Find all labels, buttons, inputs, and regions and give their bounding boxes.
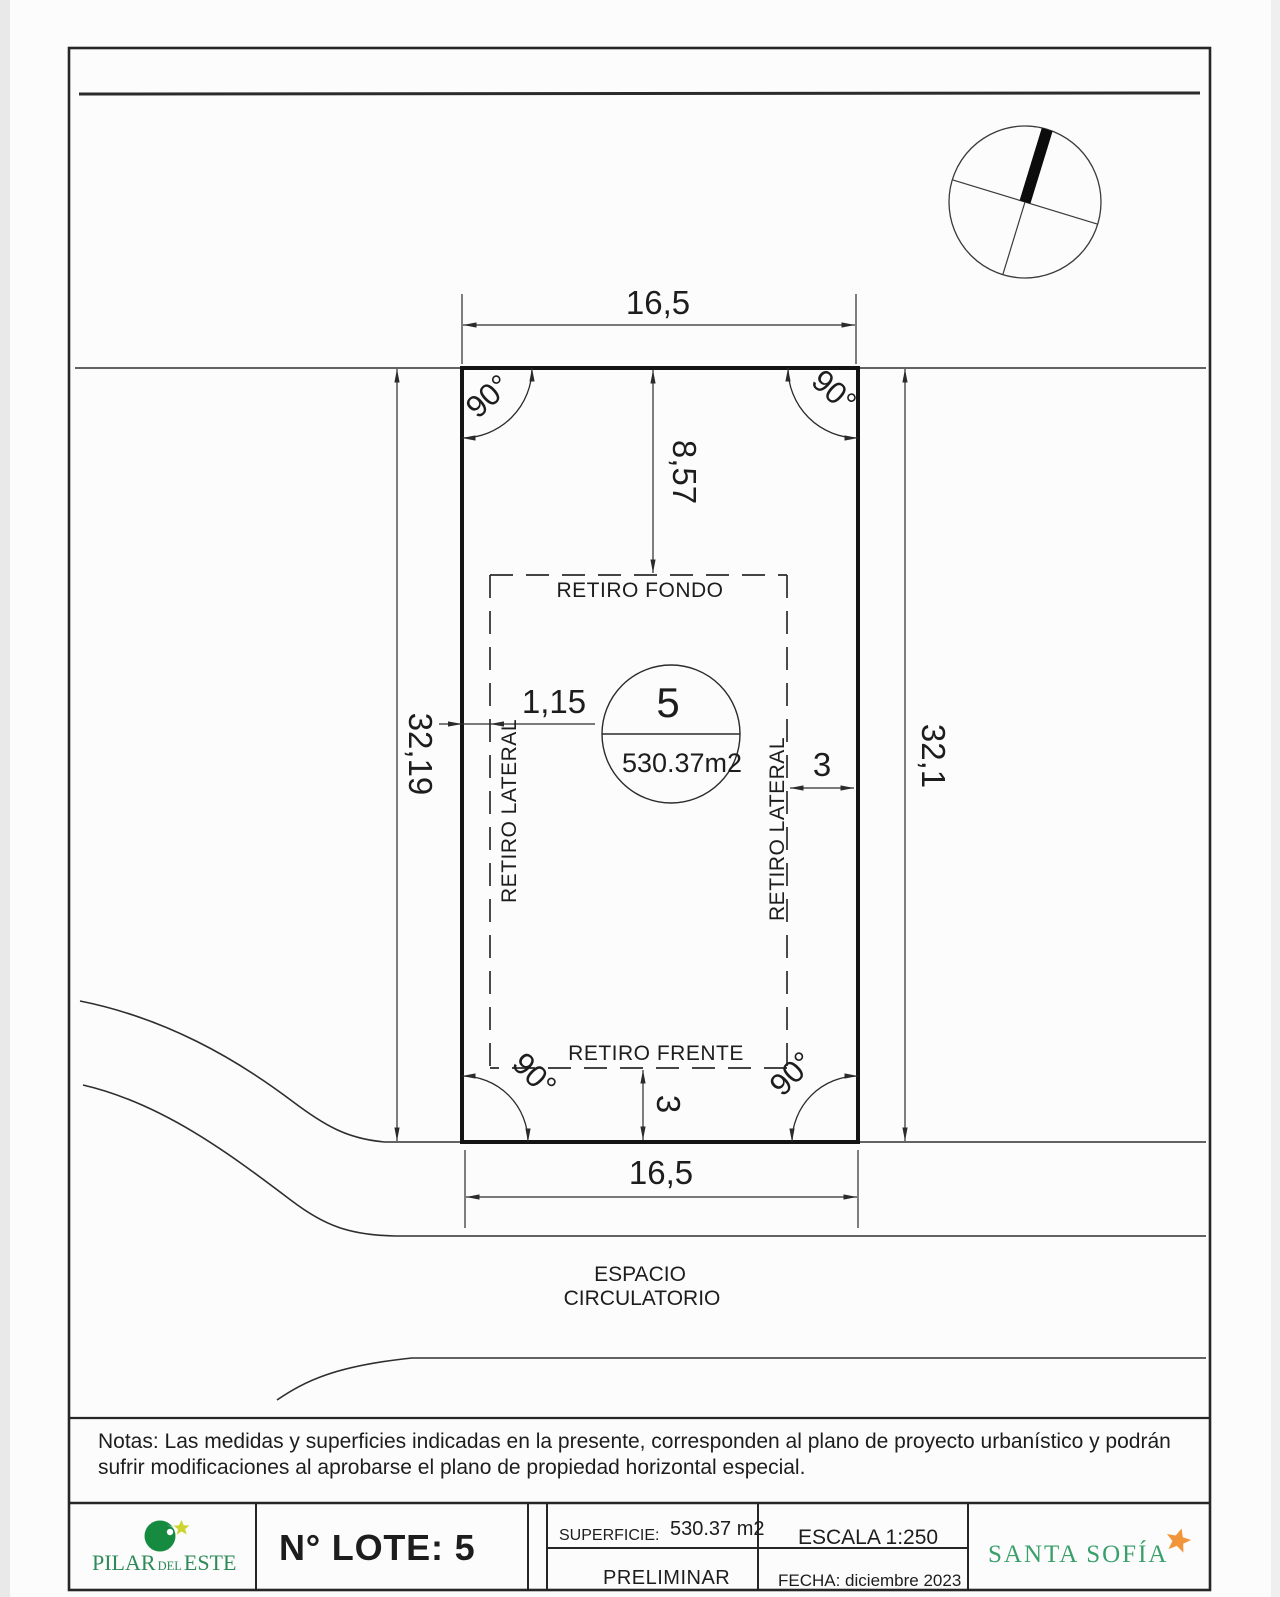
svg-text:90°: 90°	[805, 363, 863, 420]
svg-text:Notas: Las medidas y superfici: Notas: Las medidas y superficies indicad…	[98, 1430, 1171, 1453]
svg-text:32,1: 32,1	[915, 724, 952, 788]
svg-text:SUPERFICIE:: SUPERFICIE:	[559, 1527, 659, 1544]
svg-text:530.37m2: 530.37m2	[622, 748, 742, 778]
svg-text:sufrir modificaciones al aprob: sufrir modificaciones al aprobarse el pl…	[98, 1456, 805, 1479]
svg-text:PRELIMINAR: PRELIMINAR	[603, 1567, 730, 1589]
svg-text:ESPACIO: ESPACIO	[594, 1263, 686, 1286]
svg-text:FECHA: diciembre 2023: FECHA: diciembre 2023	[778, 1571, 961, 1590]
svg-text:5: 5	[656, 679, 679, 726]
svg-text:3: 3	[813, 746, 831, 783]
svg-text:32,19: 32,19	[402, 713, 439, 796]
svg-text:16,5: 16,5	[626, 284, 690, 321]
svg-text:RETIRO FONDO: RETIRO FONDO	[557, 579, 724, 602]
svg-text:16,5: 16,5	[629, 1154, 693, 1191]
svg-text:90°: 90°	[763, 1045, 821, 1103]
svg-text:SANTA SOFÍA: SANTA SOFÍA	[988, 1540, 1168, 1568]
svg-text:PILARDELESTE: PILARDELESTE	[92, 1550, 236, 1575]
svg-text:N° LOTE: 5: N° LOTE: 5	[279, 1527, 475, 1568]
svg-text:3: 3	[650, 1095, 687, 1113]
svg-text:90°: 90°	[505, 1046, 563, 1104]
svg-text:8,57: 8,57	[666, 440, 703, 504]
svg-text:90°: 90°	[459, 368, 517, 425]
svg-text:CIRCULATORIO: CIRCULATORIO	[564, 1287, 721, 1310]
svg-text:RETIRO FRENTE: RETIRO FRENTE	[568, 1042, 744, 1065]
svg-text:RETIRO LATERAL: RETIRO LATERAL	[498, 719, 521, 903]
svg-text:530.37 m2: 530.37 m2	[670, 1518, 765, 1540]
svg-text:1,15: 1,15	[522, 683, 586, 720]
svg-text:ESCALA 1:250: ESCALA 1:250	[798, 1526, 938, 1549]
svg-text:RETIRO LATERAL: RETIRO LATERAL	[766, 737, 789, 921]
